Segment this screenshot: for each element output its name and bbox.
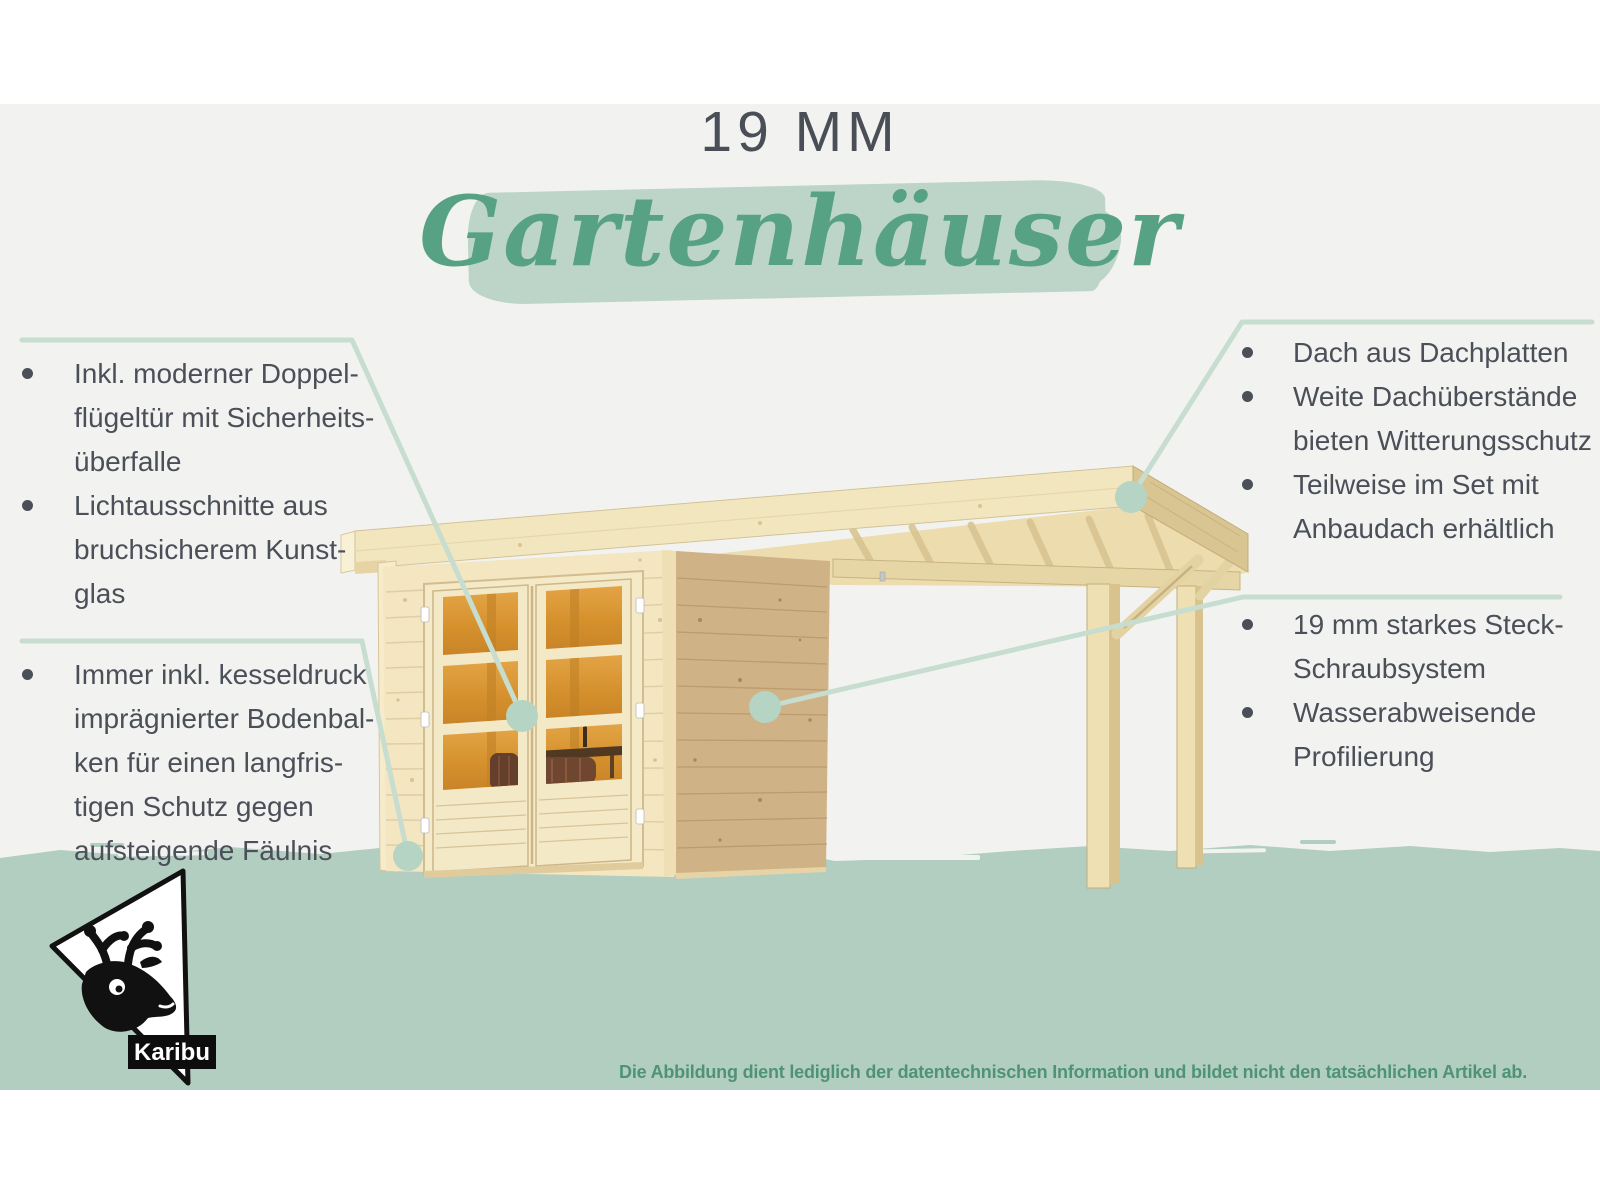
disclaimer-text: Die Abbildung dient lediglich der datent…	[619, 1062, 1527, 1083]
list-item: Dach aus Dachplatten	[1234, 331, 1600, 375]
rear-post-side	[1196, 586, 1203, 865]
callout-item-text: Lichtausschnitte aus bruchsicherem Kunst…	[74, 484, 346, 616]
list-item: Immer inkl. kesseldruck imprägnierter Bo…	[0, 653, 390, 873]
callout-item-text: Dach aus Dachplatten	[1293, 331, 1569, 375]
callout-block-top-left: Inkl. moderner Doppel- flügeltür mit Sic…	[0, 352, 390, 616]
callout-item-text: Immer inkl. kesseldruck imprägnierter Bo…	[74, 653, 374, 873]
list-item: Teilweise im Set mit Anbaudach erhältlic…	[1234, 463, 1600, 551]
logo-brand-text: Karibu	[134, 1039, 210, 1066]
corner-board	[662, 550, 676, 877]
bullet-icon	[22, 500, 33, 511]
callout-block-top-right: Dach aus Dachplatten Weite Dachüberständ…	[1234, 331, 1600, 551]
callout-dot-roof	[1115, 481, 1147, 513]
bullet-icon	[1242, 391, 1253, 402]
rear-post	[1177, 586, 1196, 868]
page-title-kicker: 19 MM	[0, 99, 1600, 165]
bullet-icon	[22, 669, 33, 680]
bullet-icon	[22, 368, 33, 379]
list-item: 19 mm starkes Steck- Schraubsystem	[1234, 603, 1600, 691]
list-item: Wasserabweisende Profilierung	[1234, 691, 1600, 779]
list-item: Inkl. moderner Doppel- flügeltür mit Sic…	[0, 352, 390, 484]
callout-item-text: Weite Dachüberstände bieten Witterungssc…	[1293, 375, 1592, 463]
callout-item-text: Wasserabweisende Profilierung	[1293, 691, 1536, 779]
bullet-icon	[1242, 707, 1253, 718]
garden-shed	[341, 466, 1248, 888]
callout-block-bottom-left: Immer inkl. kesseldruck imprägnierter Bo…	[0, 653, 390, 873]
callout-dot-base	[393, 841, 423, 871]
callout-item-text: Teilweise im Set mit Anbaudach erhältlic…	[1293, 463, 1555, 551]
ground-band	[0, 840, 1600, 1090]
callout-dot-door	[506, 700, 538, 732]
bullet-icon	[1242, 619, 1253, 630]
bullet-icon	[1242, 347, 1253, 358]
callout-block-bottom-right: 19 mm starkes Steck- Schraubsystem Wasse…	[1234, 603, 1600, 779]
callout-dot-wall	[749, 691, 781, 723]
list-item: Weite Dachüberstände bieten Witterungssc…	[1234, 375, 1600, 463]
list-item: Lichtausschnitte aus bruchsicherem Kunst…	[0, 484, 390, 616]
bullet-icon	[1242, 479, 1253, 490]
page-title-script: Gartenhäuser	[0, 172, 1600, 292]
callout-item-text: 19 mm starkes Steck- Schraubsystem	[1293, 603, 1564, 691]
callout-item-text: Inkl. moderner Doppel- flügeltür mit Sic…	[74, 352, 374, 484]
